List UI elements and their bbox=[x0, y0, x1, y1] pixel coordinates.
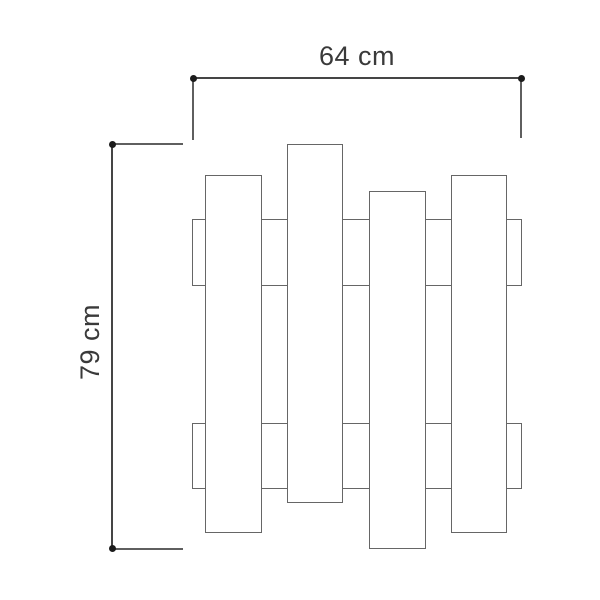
height-dimension-line bbox=[111, 144, 113, 549]
vertical-plank-3 bbox=[369, 191, 426, 549]
width-dimension-extension-right bbox=[520, 78, 522, 138]
vertical-plank-2 bbox=[287, 144, 343, 503]
width-dimension-extension-left bbox=[192, 78, 194, 140]
height-dimension-endpoint-dot-bottom bbox=[109, 545, 116, 552]
height-dimension-label: 79 cm bbox=[74, 242, 106, 442]
width-dimension-label: 64 cm bbox=[257, 40, 457, 72]
vertical-plank-4 bbox=[451, 175, 507, 533]
width-dimension-line bbox=[193, 77, 521, 79]
vertical-plank-1 bbox=[205, 175, 262, 533]
width-dimension-endpoint-dot-right bbox=[518, 75, 525, 82]
height-dimension-extension-top bbox=[112, 143, 183, 145]
height-dimension-extension-bottom bbox=[112, 548, 183, 550]
width-dimension-endpoint-dot-left bbox=[190, 75, 197, 82]
dimension-drawing-canvas: 64 cm 79 cm bbox=[0, 0, 600, 600]
height-dimension-endpoint-dot-top bbox=[109, 141, 116, 148]
